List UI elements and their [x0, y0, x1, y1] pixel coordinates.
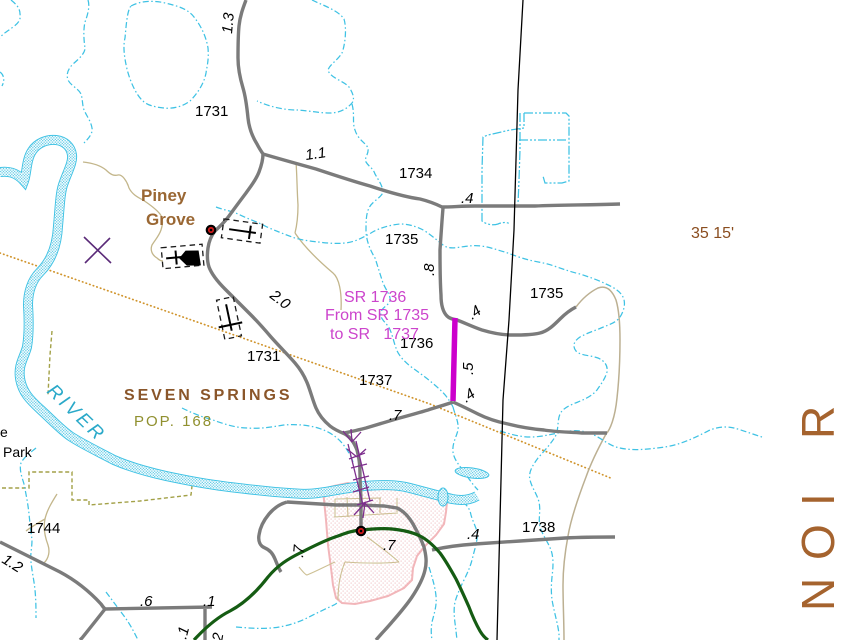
svg-text:SR 1736: SR 1736 [344, 289, 406, 306]
svg-text:1735: 1735 [385, 231, 418, 248]
svg-text:Piney: Piney [141, 186, 187, 205]
svg-text:From SR 1735: From SR 1735 [325, 307, 429, 324]
svg-text:e: e [0, 424, 8, 440]
svg-text:N: N [792, 578, 844, 611]
svg-text:.7: .7 [290, 544, 308, 559]
svg-text:O: O [792, 524, 844, 560]
svg-text:1735: 1735 [530, 285, 563, 302]
svg-text:Park: Park [3, 444, 33, 460]
svg-text:1.1: 1.1 [304, 144, 327, 164]
svg-text:.1: .1 [203, 593, 216, 610]
svg-text:.7: .7 [389, 407, 402, 424]
svg-text:.7: .7 [383, 537, 396, 554]
svg-text:R: R [792, 406, 844, 439]
svg-text:1734: 1734 [399, 165, 432, 182]
svg-text:.4: .4 [461, 190, 474, 207]
svg-text:1738: 1738 [522, 519, 555, 536]
svg-text:.8: .8 [421, 263, 438, 276]
svg-text:1731: 1731 [247, 348, 280, 365]
svg-text:.5: .5 [460, 362, 477, 375]
svg-text:1744: 1744 [27, 520, 60, 537]
svg-text:.6: .6 [140, 593, 153, 610]
svg-text:1.3: 1.3 [219, 11, 238, 34]
svg-text:SEVEN SPRINGS: SEVEN SPRINGS [124, 387, 292, 404]
svg-text:to SR 1737: to SR 1737 [330, 326, 419, 343]
svg-text:POP. 168: POP. 168 [134, 413, 213, 430]
svg-text:.4: .4 [467, 526, 480, 543]
svg-text:35 15': 35 15' [691, 225, 734, 242]
svg-text:1731: 1731 [195, 103, 228, 120]
svg-text:1737: 1737 [359, 372, 392, 389]
svg-text:I: I [792, 493, 844, 506]
svg-text:Grove: Grove [146, 210, 195, 229]
